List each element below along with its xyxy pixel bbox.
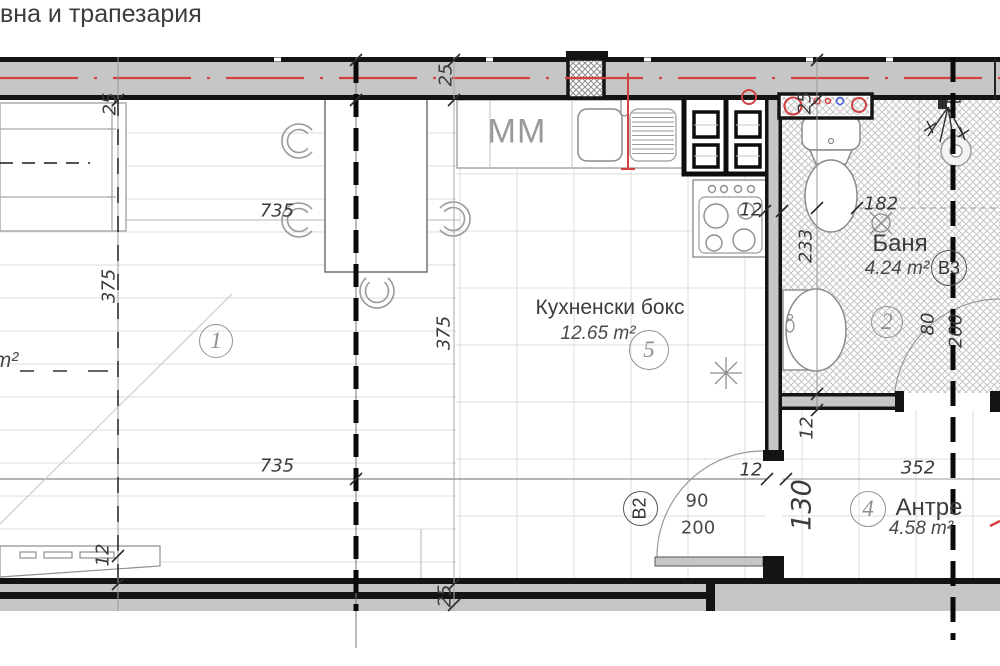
kitchen-tall-unit [684, 97, 768, 174]
plumbing-shaft [779, 94, 872, 118]
room-label-living: вна и трапезария [0, 0, 202, 29]
dimension-label: 12 [93, 544, 114, 567]
door-marker-b3: В3 [931, 250, 967, 286]
room-label-bathroom: Баня [872, 230, 927, 258]
room-area-hallway: 4.58 m² [889, 518, 953, 540]
dimension-label: 80 [918, 313, 939, 336]
toilet [802, 116, 860, 232]
room-label-kitchen: Кухненски бокс [536, 296, 685, 320]
door-marker-b2: В2 [623, 491, 658, 526]
dining-table [325, 95, 427, 272]
dimension-label: 25 [100, 93, 121, 116]
dimension-label: 735 [260, 201, 294, 222]
dimension-label: 12 [740, 200, 763, 221]
dimension-label: 12 [740, 460, 763, 481]
dimension-label: 25 [436, 64, 457, 87]
boiler-symbol [710, 357, 742, 389]
room-number-kitchen: 5 [629, 330, 669, 370]
dimension-label: 200 [946, 314, 967, 348]
room-area-kitchen: 12.65 m² [561, 323, 636, 345]
kitchen-unit-label: MM [488, 113, 547, 152]
dimension-label: 25 [795, 92, 816, 115]
room-area-bathroom: 4.24 m² [865, 258, 929, 280]
dimension-label: 182 [864, 194, 898, 215]
room-number-living: 1 [199, 324, 233, 358]
dimension-label: 375 [434, 316, 455, 350]
floor-plan-drawing [0, 0, 1000, 666]
bathroom-sink [783, 289, 846, 371]
room-number-bathroom: 2 [871, 306, 903, 338]
shower-drain [941, 136, 971, 166]
room-number-hallway: 4 [850, 491, 886, 527]
room-area-living: m² [0, 349, 18, 373]
kitchen-sink [578, 109, 622, 161]
dimension-label: 90 [686, 491, 709, 512]
dimension-label: 12 [797, 417, 818, 440]
dimension-label: 352 [901, 458, 935, 479]
dimension-label: 200 [681, 518, 715, 539]
sofa [0, 103, 126, 231]
dimension-label: 735 [260, 456, 294, 477]
faucet-icon [621, 98, 628, 116]
tv-console [0, 546, 160, 577]
dimension-label: 130 [787, 479, 818, 531]
floor-plan: вна и трапезария m² Кухненски бокс 12.65… [0, 0, 1000, 666]
dimension-label: 375 [99, 269, 120, 303]
dimension-label: 25 [435, 585, 456, 608]
dimension-label: 233 [796, 229, 817, 263]
